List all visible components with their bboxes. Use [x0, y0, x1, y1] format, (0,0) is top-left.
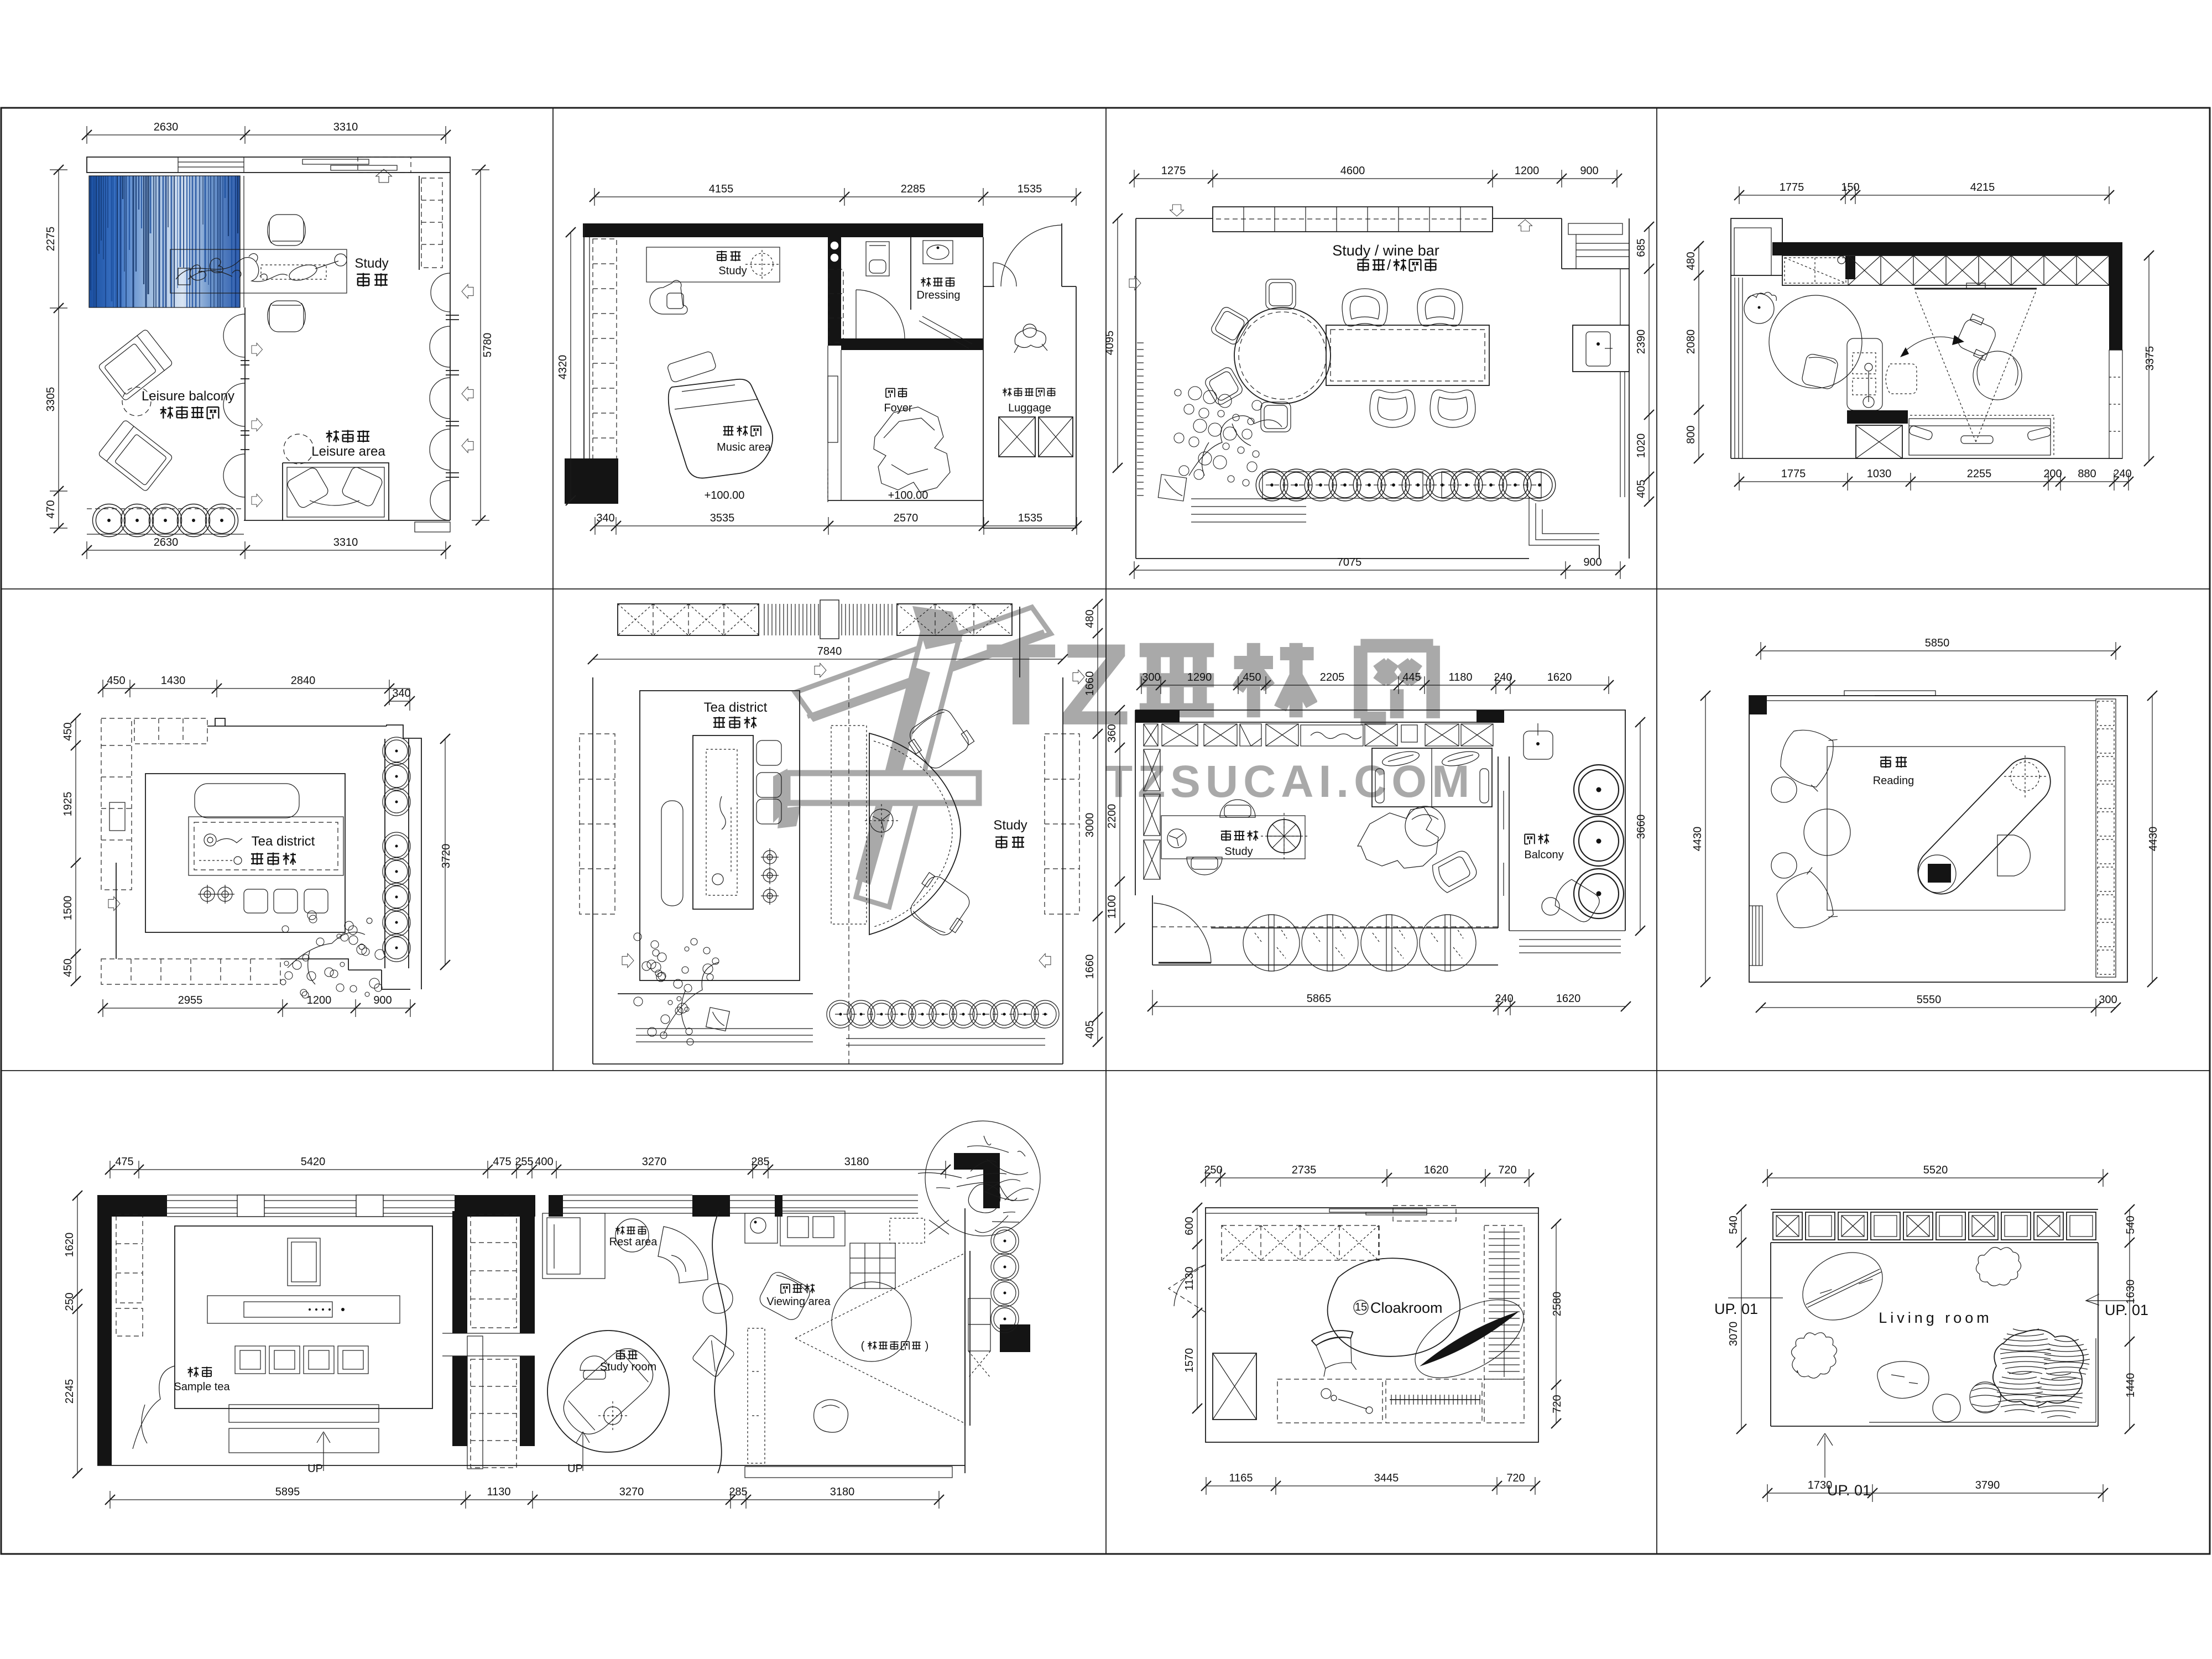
svg-text:3310: 3310 — [333, 536, 358, 549]
svg-text:1020: 1020 — [1635, 434, 1647, 458]
svg-text:360: 360 — [1106, 724, 1118, 742]
svg-text:1030: 1030 — [1867, 468, 1892, 480]
svg-text:255: 255 — [515, 1156, 533, 1168]
svg-text:Study: Study — [354, 256, 388, 271]
svg-text:2390: 2390 — [1635, 330, 1647, 354]
svg-text:Rest area: Rest area — [609, 1236, 658, 1248]
svg-text:1660: 1660 — [1084, 954, 1096, 979]
svg-text:1130: 1130 — [487, 1486, 510, 1498]
svg-text:1430: 1430 — [161, 675, 186, 687]
svg-text:1620: 1620 — [64, 1233, 76, 1258]
svg-text:Dressing: Dressing — [917, 289, 961, 301]
svg-text:2080: 2080 — [1685, 330, 1697, 354]
svg-text:450: 450 — [107, 675, 125, 687]
svg-text:7840: 7840 — [817, 645, 842, 658]
svg-text:300: 300 — [2099, 994, 2117, 1006]
svg-text:400: 400 — [535, 1156, 553, 1168]
svg-text:Living room: Living room — [1879, 1310, 1992, 1326]
svg-text:5550: 5550 — [1917, 994, 1942, 1006]
svg-text:250: 250 — [1204, 1164, 1222, 1176]
svg-text:3180: 3180 — [830, 1486, 855, 1498]
svg-text:Reading: Reading — [1873, 775, 1914, 787]
svg-text:150: 150 — [1841, 181, 1859, 194]
svg-text:600: 600 — [1183, 1217, 1196, 1235]
svg-text:4215: 4215 — [1970, 181, 1995, 194]
svg-text:1440: 1440 — [2125, 1373, 2137, 1398]
svg-text:2200: 2200 — [1106, 804, 1118, 829]
svg-text:1130: 1130 — [1183, 1266, 1196, 1290]
svg-text:1925: 1925 — [62, 792, 74, 817]
svg-text:1165: 1165 — [1229, 1472, 1253, 1484]
svg-text:Music area: Music area — [717, 441, 771, 453]
svg-text:3305: 3305 — [45, 387, 57, 412]
svg-text:1630: 1630 — [2125, 1280, 2137, 1305]
svg-text:1535: 1535 — [1018, 512, 1043, 524]
svg-text:1500: 1500 — [62, 896, 74, 921]
svg-text:Tea district: Tea district — [252, 834, 315, 849]
svg-text:3660: 3660 — [1635, 815, 1647, 839]
svg-text:900: 900 — [1583, 556, 1601, 568]
svg-text:UP: UP — [307, 1463, 323, 1475]
svg-text:480: 480 — [1084, 609, 1096, 628]
svg-text:240: 240 — [2113, 468, 2131, 480]
svg-text:2955: 2955 — [178, 994, 203, 1006]
svg-text:5520: 5520 — [1923, 1164, 1948, 1176]
svg-text:Viewing area: Viewing area — [766, 1296, 831, 1308]
svg-text:685: 685 — [1635, 238, 1647, 257]
svg-text:2580: 2580 — [1551, 1292, 1563, 1317]
svg-text:900: 900 — [1580, 165, 1598, 177]
svg-text:1275: 1275 — [1161, 165, 1186, 177]
svg-text:4155: 4155 — [709, 183, 734, 195]
svg-text:15: 15 — [1355, 1301, 1367, 1313]
svg-text:450: 450 — [62, 722, 74, 740]
svg-text:Tea district: Tea district — [704, 700, 768, 715]
svg-text:1620: 1620 — [1424, 1164, 1449, 1176]
svg-text:2275: 2275 — [45, 227, 57, 252]
svg-text:5895: 5895 — [275, 1486, 300, 1498]
svg-text:2570: 2570 — [894, 512, 919, 524]
svg-text:3070: 3070 — [1728, 1322, 1740, 1347]
svg-text:4600: 4600 — [1340, 165, 1365, 177]
svg-text:1100: 1100 — [1106, 895, 1118, 919]
svg-text:+100.00: +100.00 — [705, 489, 745, 502]
svg-text:300: 300 — [1142, 671, 1160, 684]
svg-text:5850: 5850 — [1925, 637, 1950, 649]
svg-text:3445: 3445 — [1374, 1472, 1399, 1484]
svg-text:3310: 3310 — [333, 121, 358, 133]
svg-text:1660: 1660 — [1084, 671, 1096, 696]
svg-text:3375: 3375 — [2144, 346, 2156, 371]
svg-text:3000: 3000 — [1084, 813, 1096, 838]
svg-text:2285: 2285 — [901, 183, 926, 195]
svg-text:340: 340 — [596, 512, 614, 524]
svg-text:3270: 3270 — [642, 1156, 667, 1168]
svg-text:4430: 4430 — [2147, 827, 2159, 852]
svg-text:450: 450 — [1243, 671, 1261, 684]
svg-text:Foyer: Foyer — [884, 402, 912, 414]
svg-text:Leisure balcony: Leisure balcony — [142, 389, 234, 404]
svg-text:2245: 2245 — [64, 1379, 76, 1404]
svg-text:1535: 1535 — [1018, 183, 1042, 195]
svg-text:1730: 1730 — [1808, 1479, 1833, 1491]
svg-text:540: 540 — [2125, 1215, 2137, 1234]
svg-text:720: 720 — [1498, 1164, 1516, 1176]
svg-text:340: 340 — [392, 687, 410, 700]
svg-text:4430: 4430 — [1692, 827, 1704, 852]
svg-text:475: 475 — [493, 1156, 511, 1168]
svg-text:900: 900 — [373, 994, 392, 1006]
svg-text:1200: 1200 — [1515, 165, 1540, 177]
svg-text:Study: Study — [993, 818, 1027, 833]
svg-text:2735: 2735 — [1292, 1164, 1317, 1176]
svg-text:Study: Study — [1224, 846, 1253, 858]
svg-text:475: 475 — [115, 1156, 133, 1168]
svg-text:3180: 3180 — [844, 1156, 869, 1168]
svg-text:Study room: Study room — [600, 1361, 656, 1373]
svg-text:250: 250 — [64, 1292, 76, 1311]
svg-text:Sample tea: Sample tea — [174, 1381, 230, 1393]
svg-text:1775: 1775 — [1780, 181, 1804, 194]
svg-text:1620: 1620 — [1556, 993, 1581, 1005]
svg-text:405: 405 — [1084, 1020, 1096, 1039]
svg-text:UP. 01: UP. 01 — [1827, 1482, 1871, 1499]
svg-text:3535: 3535 — [710, 512, 735, 524]
svg-text:1775: 1775 — [1781, 468, 1806, 480]
svg-text:720: 720 — [1551, 1395, 1563, 1413]
svg-text:): ) — [925, 1340, 929, 1352]
svg-text:800: 800 — [1685, 425, 1697, 444]
svg-text:445: 445 — [1402, 671, 1421, 684]
svg-text:/: / — [1387, 257, 1391, 273]
svg-text:7075: 7075 — [1337, 556, 1362, 568]
svg-text:Cloakroom: Cloakroom — [1370, 1300, 1443, 1316]
svg-text:880: 880 — [2078, 468, 2096, 480]
svg-text:2205: 2205 — [1320, 671, 1345, 684]
svg-text:UP. 01: UP. 01 — [1714, 1301, 1758, 1317]
svg-text:4095: 4095 — [1104, 331, 1116, 356]
svg-text:5865: 5865 — [1307, 993, 1332, 1005]
svg-text:285: 285 — [751, 1156, 769, 1168]
svg-text:5420: 5420 — [301, 1156, 326, 1168]
svg-text:Leisure area: Leisure area — [311, 444, 385, 459]
svg-text:1200: 1200 — [307, 994, 332, 1006]
svg-text:(: ( — [861, 1340, 865, 1352]
svg-text:450: 450 — [62, 958, 74, 977]
svg-text:Balcony: Balcony — [1524, 849, 1563, 861]
svg-text:+100.00: +100.00 — [888, 489, 928, 502]
svg-text:2840: 2840 — [291, 675, 316, 687]
svg-text:540: 540 — [1728, 1215, 1740, 1234]
svg-text:720: 720 — [1506, 1472, 1525, 1484]
svg-text:240: 240 — [1495, 993, 1513, 1005]
svg-text:480: 480 — [1685, 252, 1697, 270]
svg-text:1290: 1290 — [1187, 671, 1212, 684]
svg-text:470: 470 — [45, 500, 57, 518]
svg-text:2255: 2255 — [1967, 468, 1992, 480]
svg-text:3790: 3790 — [1975, 1479, 2000, 1491]
svg-text:405: 405 — [1635, 479, 1647, 498]
svg-text:3270: 3270 — [619, 1486, 644, 1498]
svg-text:Study: Study — [718, 265, 747, 277]
svg-text:3720: 3720 — [440, 844, 452, 869]
svg-text:4320: 4320 — [557, 355, 569, 380]
svg-text:2630: 2630 — [154, 536, 179, 549]
svg-text:1620: 1620 — [1547, 671, 1572, 684]
svg-text:Study / wine bar: Study / wine bar — [1332, 242, 1439, 259]
svg-text:285: 285 — [729, 1486, 747, 1498]
svg-text:1180: 1180 — [1448, 671, 1472, 684]
svg-text:1570: 1570 — [1183, 1348, 1196, 1373]
svg-text:Luggage: Luggage — [1008, 402, 1051, 414]
svg-text:5780: 5780 — [482, 333, 494, 358]
svg-text:UP: UP — [567, 1463, 583, 1475]
svg-text:200: 200 — [2043, 468, 2062, 480]
svg-text:2630: 2630 — [154, 121, 179, 133]
svg-text:240: 240 — [1494, 671, 1512, 684]
